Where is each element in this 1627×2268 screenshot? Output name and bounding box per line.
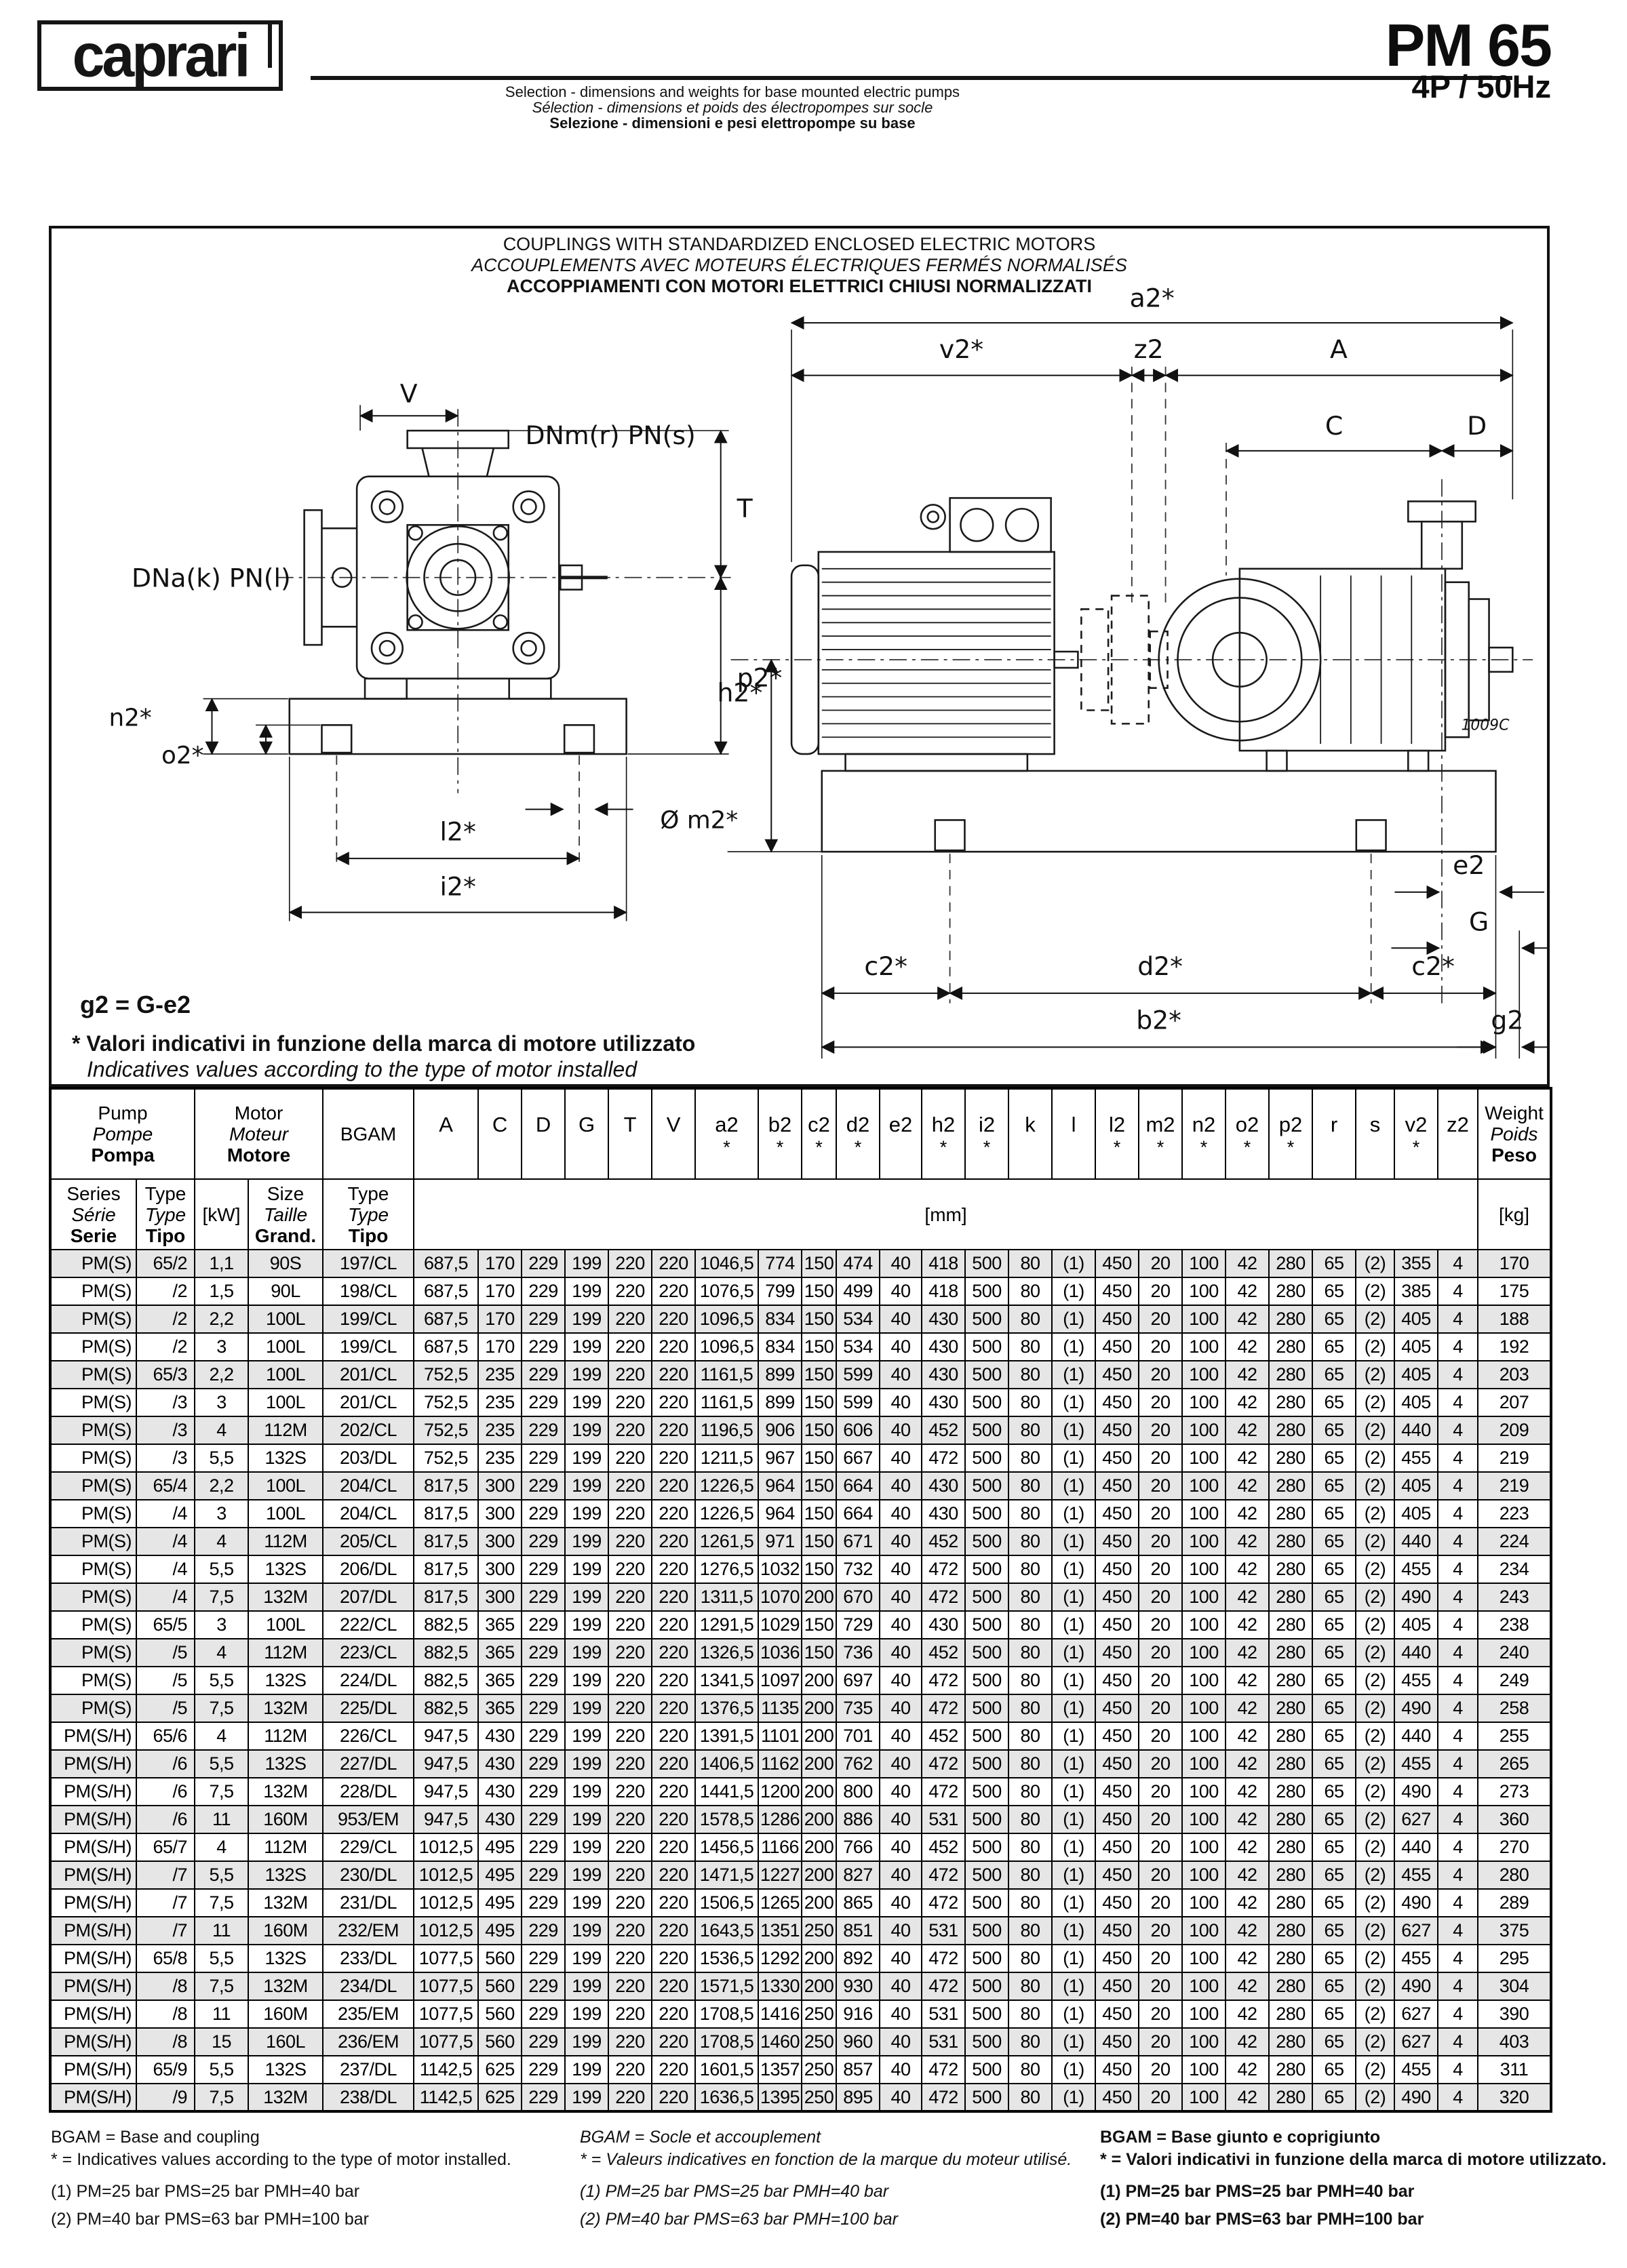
col-header-m2: m2* [1139, 1088, 1182, 1179]
table-row: PM(S)/34112M202/CL752,523522919922022011… [50, 1416, 1551, 1444]
table-row: PM(S)65/42,2100L204/CL817,53002291992202… [50, 1472, 1551, 1500]
table-row: PM(S/H)/87,5132M234/DL1077,5560229199220… [50, 1972, 1551, 2000]
datasheet-page: caprari Selection - dimensions and weigh… [0, 0, 1627, 2268]
unit-kg: [kg] [1478, 1179, 1551, 1250]
dimensions-table: Pump Pompe Pompa Motor Moteur Motore BGA… [49, 1087, 1552, 2113]
dim-label-V: V [400, 378, 418, 408]
dim-label-DNm: DNm(r) PN(s) [526, 420, 696, 450]
col-header-a2: a2* [695, 1088, 758, 1179]
col-header-s: s [1356, 1088, 1394, 1179]
table-row: PM(S/H)65/85,5132S233/DL1077,55602291992… [50, 1945, 1551, 1972]
drawing-title-it: ACCOPPIAMENTI CON MOTORI ELETTRICI CHIUS… [52, 276, 1547, 297]
table-row: PM(S)/57,5132M225/DL882,5365229199220220… [50, 1694, 1551, 1722]
dim-label-m2: Ø m2* [660, 806, 738, 834]
g2-formula-note: g2 = G-e2 [80, 991, 191, 1019]
dim-label-e2: e2 [1453, 850, 1485, 880]
col-header-h2: h2* [922, 1088, 965, 1179]
dim-label-o2: o2* [161, 742, 204, 770]
table-row: PM(S)/23100L199/CL687,517022919922022010… [50, 1333, 1551, 1361]
col-header-n2: n2* [1182, 1088, 1226, 1179]
table-row: PM(S)/55,5132S224/DL882,5365229199220220… [50, 1667, 1551, 1694]
technical-drawing: V DNm(r) PN(s) T DNa(k) PN(l) p2* n2* o2… [52, 228, 1547, 1084]
col-header-v2: v2* [1394, 1088, 1438, 1179]
unit-mm: [mm] [414, 1179, 1478, 1250]
col-group-pump: Pump Pompe Pompa [50, 1088, 195, 1179]
col-header-i2: i2* [965, 1088, 1008, 1179]
dim-label-h2: h2* [718, 678, 763, 708]
col-header-o2: o2* [1226, 1088, 1269, 1179]
dim-label-b2: b2* [1136, 1006, 1181, 1035]
col-header-kw: [kW] [195, 1179, 248, 1250]
table-row: PM(S)/22,2100L199/CL687,5170229199220220… [50, 1305, 1551, 1333]
table-row: PM(S/H)/65,5132S227/DL947,54302291992202… [50, 1750, 1551, 1778]
dim-label-c2-left: c2* [864, 951, 907, 981]
dim-label-n2: n2* [109, 704, 151, 732]
col-header-size: Size Taille Grand. [248, 1179, 323, 1250]
star-note-it: * Valori indicativi in funzione della ma… [72, 1031, 695, 1056]
col-header-k: k [1008, 1088, 1052, 1179]
table-body: PM(S)65/21,190S197/CL687,517022919922022… [50, 1250, 1551, 2111]
col-header-e2: e2 [880, 1088, 922, 1179]
table-row: PM(S)/35,5132S203/DL752,5235229199220220… [50, 1444, 1551, 1472]
table-row: PM(S)/21,590L198/CL687,51702291992202201… [50, 1277, 1551, 1305]
table-row: PM(S/H)/815160L236/EM1077,55602291992202… [50, 2028, 1551, 2056]
footnotes-french: BGAM = Socle et accouplement * = Valeurs… [580, 2126, 1095, 2231]
table-row: PM(S)/45,5132S206/DL817,5300229199220220… [50, 1555, 1551, 1583]
col-header-V: V [652, 1088, 695, 1179]
table-row: PM(S/H)/75,5132S230/DL1012,5495229199220… [50, 1861, 1551, 1889]
drawing-title-en: COUPLINGS WITH STANDARDIZED ENCLOSED ELE… [52, 234, 1547, 255]
subtitle-fr: Sélection - dimensions et poids des élec… [434, 100, 1031, 115]
table-row: PM(S/H)65/64112M226/CL947,54302291992202… [50, 1722, 1551, 1750]
col-header-series: Series Série Serie [50, 1179, 136, 1250]
col-header-c2: c2* [802, 1088, 836, 1179]
table-row: PM(S/H)/97,5132M238/DL1142,5625229199220… [50, 2084, 1551, 2111]
page-subtitle: Selection - dimensions and weights for b… [434, 84, 1031, 131]
col-header-b2: b2* [758, 1088, 802, 1179]
dim-label-C: C [1325, 411, 1343, 441]
dim-label-g2: g2 [1491, 1006, 1523, 1035]
col-header-C: C [478, 1088, 522, 1179]
col-header-A: A [414, 1088, 478, 1179]
col-header-D: D [522, 1088, 565, 1179]
col-header-T: T [608, 1088, 652, 1179]
subtitle-it: Selezione - dimensioni e pesi elettropom… [434, 115, 1031, 131]
model-spec: 4P / 50Hz [1280, 68, 1551, 105]
footnotes-english: BGAM = Base and coupling * = Indicatives… [51, 2126, 566, 2231]
footnotes-italian: BGAM = Base giunto e coprigiunto * = Val… [1100, 2126, 1615, 2231]
table-row: PM(S)65/21,190S197/CL687,517022919922022… [50, 1250, 1551, 1277]
dim-label-A: A [1330, 334, 1348, 364]
table-row: PM(S/H)/811160M235/EM1077,55602291992202… [50, 2000, 1551, 2028]
col-header-z2: z2 [1438, 1088, 1478, 1179]
dim-label-DNa: DNa(k) PN(l) [132, 563, 291, 593]
dim-label-z2: z2 [1134, 334, 1164, 364]
table-row: PM(S/H)65/74112M229/CL1012,5495229199220… [50, 1833, 1551, 1861]
table-row: PM(S)65/53100L222/CL882,5365229199220220… [50, 1611, 1551, 1639]
col-header-l2: l2* [1095, 1088, 1139, 1179]
dim-label-v2: v2* [939, 334, 983, 364]
col-header-G: G [565, 1088, 608, 1179]
drawing-title-fr: ACCOUPLEMENTS AVEC MOTEURS ÉLECTRIQUES F… [52, 255, 1547, 276]
table-row: PM(S)/43100L204/CL817,530022919922022012… [50, 1500, 1551, 1528]
subtitle-en: Selection - dimensions and weights for b… [434, 84, 1031, 100]
col-header-r: r [1312, 1088, 1356, 1179]
dim-label-D: D [1467, 411, 1487, 441]
table-row: PM(S)65/32,2100L201/CL752,52352291992202… [50, 1361, 1551, 1389]
col-header-bgam: BGAM [323, 1088, 414, 1179]
logo-corner-mark [268, 20, 272, 68]
table-row: PM(S/H)/67,5132M228/DL947,54302291992202… [50, 1778, 1551, 1806]
col-header-p2: p2* [1269, 1088, 1312, 1179]
table-row: PM(S/H)/711160M232/EM1012,54952291992202… [50, 1917, 1551, 1945]
col-group-weight: Weight Poids Peso [1478, 1088, 1551, 1179]
drawing-frame: V DNm(r) PN(s) T DNa(k) PN(l) p2* n2* o2… [49, 226, 1550, 1087]
table-row: PM(S/H)65/95,5132S237/DL1142,56252291992… [50, 2056, 1551, 2084]
caprari-logo: caprari [37, 20, 283, 91]
table-row: PM(S)/54112M223/CL882,536522919922022013… [50, 1639, 1551, 1667]
table-row: PM(S)/47,5132M207/DL817,5300229199220220… [50, 1583, 1551, 1611]
star-note-en: Indicatives values according to the type… [87, 1057, 637, 1082]
col-header-type: Type Type Tipo [136, 1179, 195, 1250]
dim-label-c2-right: c2* [1411, 951, 1455, 981]
logo-text: caprari [73, 20, 248, 91]
drawing-title: COUPLINGS WITH STANDARDIZED ENCLOSED ELE… [52, 234, 1547, 297]
col-header-l: l [1052, 1088, 1095, 1179]
dim-label-G: G [1469, 907, 1489, 936]
drawing-ref-code: 1009C [1461, 717, 1510, 734]
table-row: PM(S)/33100L201/CL752,523522919922022011… [50, 1389, 1551, 1416]
col-header-d2: d2* [836, 1088, 880, 1179]
table-row: PM(S/H)/611160M953/EM947,543022919922022… [50, 1806, 1551, 1833]
dim-label-l2: l2* [439, 816, 475, 846]
col-header-bgam-type: Type Type Tipo [323, 1179, 414, 1250]
table-row: PM(S/H)/77,5132M231/DL1012,5495229199220… [50, 1889, 1551, 1917]
col-group-motor: Motor Moteur Motore [195, 1088, 323, 1179]
dim-label-T: T [737, 493, 753, 523]
dim-label-i2: i2* [439, 872, 475, 902]
table-row: PM(S)/44112M205/CL817,530022919922022012… [50, 1528, 1551, 1555]
dim-label-d2: d2* [1137, 951, 1183, 981]
